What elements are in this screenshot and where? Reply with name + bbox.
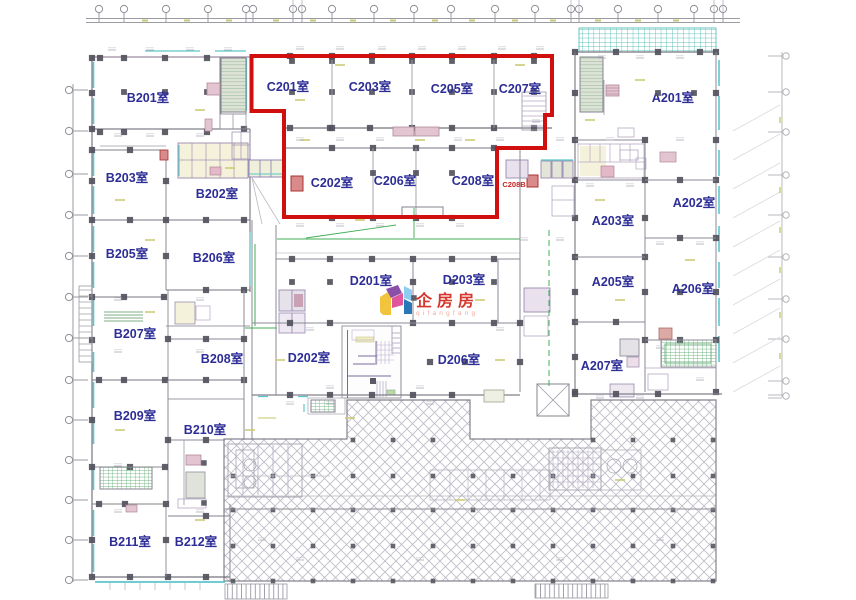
svg-text:C207室: C207室 (499, 81, 542, 96)
svg-text:B210室: B210室 (184, 422, 227, 437)
svg-text:C208B: C208B (502, 180, 526, 189)
svg-text:B212室: B212室 (175, 534, 218, 549)
svg-text:A207室: A207室 (581, 358, 624, 373)
svg-text:C208室: C208室 (452, 173, 495, 188)
svg-text:B201室: B201室 (127, 90, 170, 105)
svg-text:A202室: A202室 (673, 195, 716, 210)
svg-text:C203室: C203室 (349, 79, 392, 94)
svg-text:C205室: C205室 (431, 81, 474, 96)
svg-text:企房房: 企房房 (415, 291, 479, 310)
svg-text:C202室: C202室 (311, 175, 354, 190)
svg-text:D203室: D203室 (443, 272, 486, 287)
svg-text:D206室: D206室 (438, 352, 481, 367)
svg-text:A205室: A205室 (592, 274, 635, 289)
svg-text:B203室: B203室 (106, 170, 149, 185)
svg-text:B208室: B208室 (201, 351, 244, 366)
svg-text:B207室: B207室 (114, 326, 157, 341)
svg-text:qifangfang: qifangfang (416, 310, 478, 317)
svg-text:D202室: D202室 (288, 350, 331, 365)
svg-text:C201室: C201室 (267, 79, 310, 94)
svg-text:B206室: B206室 (193, 250, 236, 265)
svg-text:C206室: C206室 (374, 173, 417, 188)
svg-text:B211室: B211室 (109, 534, 151, 549)
svg-text:B202室: B202室 (196, 186, 239, 201)
svg-text:B205室: B205室 (106, 246, 149, 261)
svg-text:B209室: B209室 (114, 408, 157, 423)
svg-text:D201室: D201室 (350, 273, 393, 288)
svg-text:A206室: A206室 (672, 281, 715, 296)
svg-text:A203室: A203室 (592, 213, 635, 228)
